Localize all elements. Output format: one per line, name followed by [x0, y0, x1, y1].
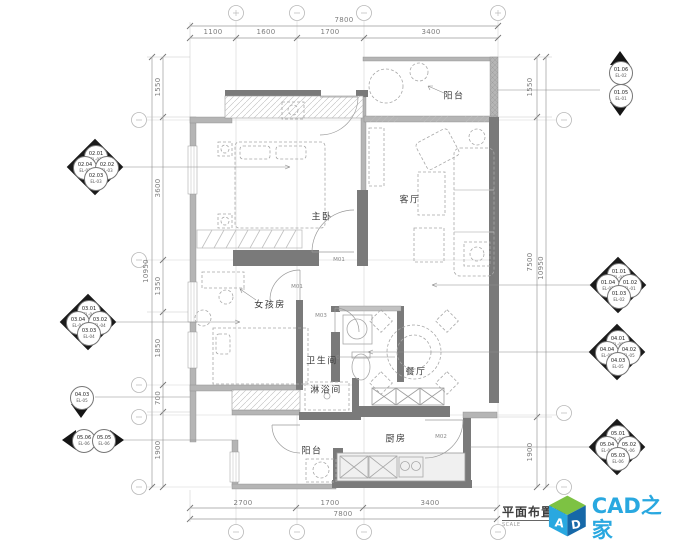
- floor-plan-canvas: 阳台客厅主卧女孩房卫生间淋浴间餐厅厨房阳台M01M01M03M021100160…: [0, 0, 680, 544]
- leader-layer: [95, 86, 600, 447]
- svg-text:A: A: [554, 515, 565, 530]
- logo-text[interactable]: CAD之家: [592, 494, 680, 542]
- logo-cube-icon: A D: [547, 494, 588, 538]
- cadzj-logo[interactable]: A D CAD之家 WWW.CADZJ.COM: [547, 494, 680, 544]
- floor-plan-drawing: [0, 0, 680, 544]
- wall-layer: [188, 57, 499, 489]
